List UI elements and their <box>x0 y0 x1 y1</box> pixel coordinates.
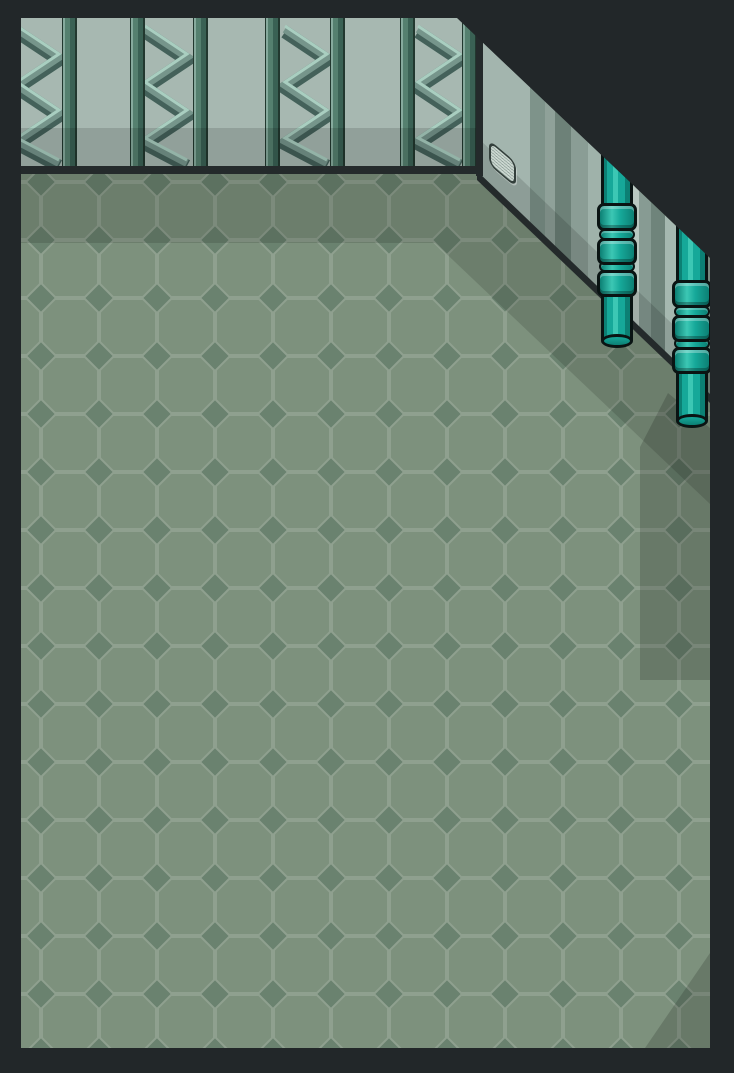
game-viewport <box>0 0 734 1073</box>
frame-border-right <box>710 0 734 1073</box>
frame-border-top <box>0 0 734 18</box>
pipe-coupling <box>672 315 712 342</box>
pipe <box>0 0 734 1073</box>
frame-border-left <box>0 0 21 1073</box>
pipes-layer <box>0 0 734 1073</box>
pipe-bottom-cap <box>676 414 708 428</box>
pipe-coupling <box>672 347 712 374</box>
frame-border-bottom <box>0 1048 734 1073</box>
pipe-coupling <box>672 280 712 308</box>
